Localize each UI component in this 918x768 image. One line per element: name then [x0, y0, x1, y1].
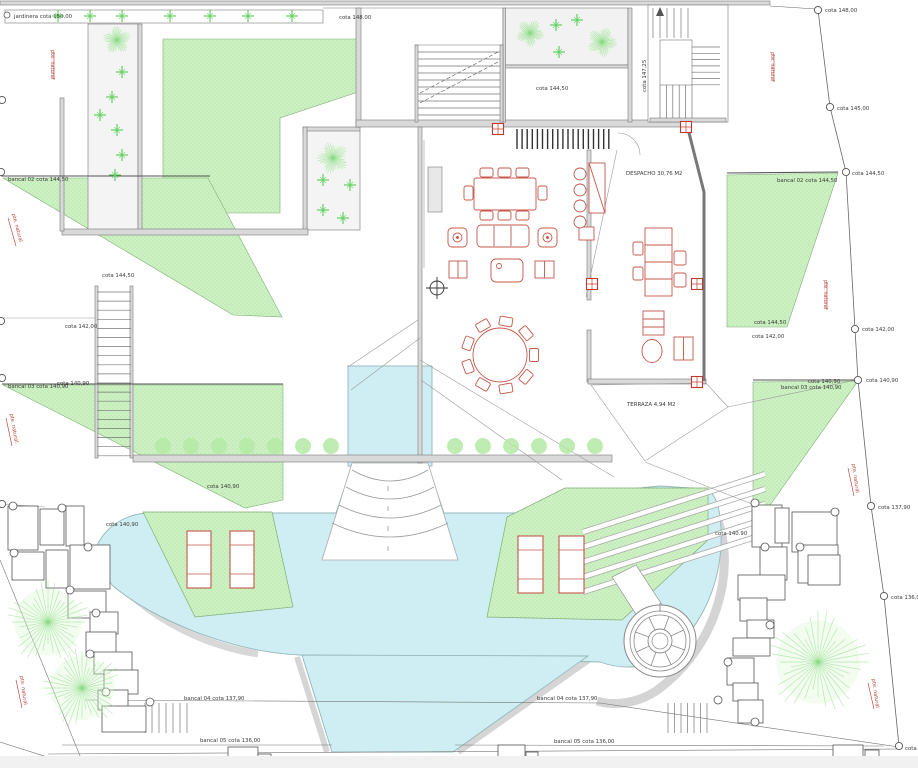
label-cota-148-right: cota 148,00 — [825, 8, 858, 14]
label-cota-142-inner: cota 142,00 — [752, 334, 785, 340]
label-cota-140-90-bdy: cota 140,90 — [866, 378, 899, 384]
label-pte-natural: pte. natural — [18, 675, 28, 705]
label-cota-140-90-pool: cota 140.90 — [715, 531, 748, 537]
label-cota-140-90-a: cota 140,90 — [207, 484, 240, 490]
fireplace — [428, 167, 442, 212]
label-pte-natural: pte. natural — [850, 463, 860, 493]
label-cota-144-50-mid: cota 144,50 — [536, 86, 569, 92]
label-bancal02-left: bancal 02 cota 144,50 — [8, 177, 69, 183]
round-table — [473, 328, 527, 382]
garden-strip — [88, 24, 138, 230]
label-cota-144-50-inner: cota 144,50 — [754, 320, 787, 326]
label-bancal05-left: bancal 05 cota 136,00 — [200, 738, 261, 744]
label-cota-136: cota 136,00 — [891, 595, 918, 601]
label-pte-natural: pte. natural — [870, 678, 880, 708]
slope-bancal02-right — [727, 173, 838, 327]
label-cota-140-90-ovr: cota 140,90 — [808, 379, 841, 385]
label-bancal03-right: bancal 03 cota 140,90 — [781, 385, 842, 391]
label-pte-natural: pte. natural — [10, 213, 23, 243]
label-cota-140-90-ovl: cota 140,90 — [57, 381, 90, 387]
label-bancal04-right: bancal 04 cota 137,90 — [537, 696, 598, 702]
label-cota-140-90-b: cota 140,90 — [106, 522, 139, 528]
label-bancal04-left: bancal 04 cota 137,90 — [184, 696, 245, 702]
furniture — [448, 163, 693, 394]
dining-table — [474, 178, 536, 210]
label-cota-144-50-bdy: cota 144,50 — [852, 171, 885, 177]
pool-cascade-steps — [322, 463, 458, 560]
label-despacho: DESPACHO 30,76 M2 — [626, 171, 682, 177]
label-cota-148-top: cota 148.00 — [339, 15, 372, 21]
label-bancal02-right: bancal 02 cota 144,50 — [777, 178, 838, 184]
label-cota-142-bdy: cota 142,00 — [862, 327, 895, 333]
plan-drawing: jardinera cota 150,00 cota 148.00 cota 1… — [0, 0, 918, 768]
label-pte-natural: pte. natural — [8, 413, 19, 443]
label-cota-144-50-left: cota 144,50 — [102, 273, 135, 279]
label-cota-145: cota 145,00 — [837, 106, 870, 112]
label-cota-cut: cota — [905, 746, 917, 752]
label-jardinera: jardinera cota 150,00 — [13, 14, 73, 20]
label-cota-137-90: cota 137,90 — [878, 505, 911, 511]
slope-bancal03-right — [753, 381, 858, 508]
coffee-table — [491, 259, 523, 282]
sofa — [477, 225, 529, 247]
entry-stair-hatch — [517, 129, 609, 149]
label-cota-147-25: cota 147,25 — [642, 60, 648, 92]
label-bancal05-right: bancal 05 cota 136,00 — [554, 739, 615, 745]
pool-lower — [302, 655, 588, 752]
bottom-band — [0, 756, 918, 768]
survey-cross-icon — [426, 277, 448, 299]
site-plan: jardinera cota 150,00 cota 148.00 cota 1… — [0, 0, 918, 768]
label-terraza: TERRAZA 4,94 M2 — [626, 402, 676, 408]
label-cota-142-left: cota 142,00 — [65, 324, 98, 330]
patio-tree — [307, 130, 360, 230]
